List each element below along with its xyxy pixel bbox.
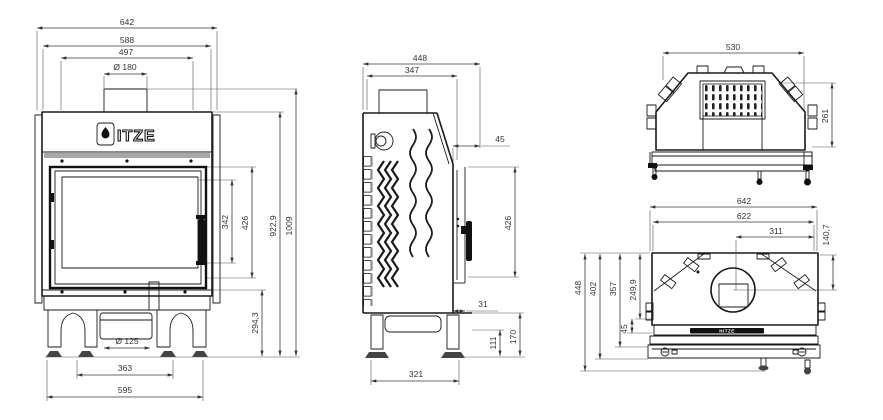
front-dim-base-width: 595: [118, 385, 132, 395]
left-slope-tabs: [658, 77, 681, 102]
top-dim-overall-depth: 448: [573, 281, 583, 295]
front-dim-door-height: 426: [240, 216, 250, 230]
vent-panel-slots: [703, 84, 762, 116]
hinge: [50, 193, 54, 202]
fireplace-drawing: 642 588 497 Ø 180 342 426 922,9 1009: [0, 0, 883, 420]
side-view: 448 347 45 426 31 111 170 321: [363, 53, 525, 385]
front-view-body: ITZE: [35, 89, 220, 357]
door-handle-side: [466, 221, 472, 261]
foot: [78, 351, 94, 357]
logo-strip-text: HITZE: [719, 329, 735, 334]
right-trim: [213, 115, 220, 303]
right-slope-tabs: [779, 77, 802, 102]
brand-logo-text: ITZE: [117, 128, 156, 145]
foot: [160, 351, 176, 357]
rear-top-body: [647, 66, 817, 186]
front-view-dimensions: 642 588 497 Ø 180 342 426 922,9 1009: [37, 17, 300, 401]
foot-bolt: [804, 179, 811, 186]
flame-icon: [102, 127, 110, 138]
right-legs: [157, 310, 206, 347]
top-band-strip: [44, 153, 210, 158]
front-frame-band: [652, 152, 812, 165]
side-dim-door-height: 426: [503, 216, 513, 230]
top-dim-body-front-depth: 357: [608, 282, 618, 296]
right-hook: [804, 152, 812, 166]
top-dim-frame-depth: 402: [588, 282, 598, 296]
foot-bolt: [757, 179, 763, 185]
front-dim-glass-height: 342: [220, 215, 230, 229]
front-dim-body-height: 922,9: [268, 215, 278, 237]
side-dim-bottom-lip: 31: [478, 299, 488, 309]
foot: [759, 366, 769, 371]
front-dim-overall-width: 642: [120, 17, 134, 27]
rear-fin-strip: [364, 156, 373, 306]
side-dim-base-height: 170: [508, 330, 518, 344]
side-dim-leg-height: 111: [488, 336, 498, 349]
left-trim: [35, 115, 42, 303]
side-dim-overall-depth: 448: [413, 53, 427, 63]
flue-collar-side: [379, 90, 427, 113]
front-dim-leg-spacing: 363: [118, 363, 132, 373]
front-leg-side: [447, 315, 459, 349]
base-band: [44, 296, 210, 310]
foot: [804, 368, 811, 375]
glass-pane: [62, 177, 198, 268]
top-dim-front-gap: 45: [619, 324, 629, 334]
front-view: 642 588 497 Ø 180 342 426 922,9 1009: [35, 17, 300, 401]
door-handle: [198, 219, 205, 262]
top-view: 642 622 311 140,7 448 402 357 249,9: [573, 196, 837, 375]
front-dim-upper-width: 588: [120, 35, 134, 45]
heat-fin-zigzag: [378, 161, 384, 287]
technical-drawing-sheet: 642 588 497 Ø 180 342 426 922,9 1009: [0, 0, 883, 420]
flue-collar: [104, 89, 147, 112]
foot: [365, 352, 389, 358]
front-dim-intake-diameter: Ø 125: [115, 336, 138, 346]
left-legs: [48, 310, 97, 347]
foot: [192, 351, 208, 357]
top-dim-flue-offset: 311: [769, 226, 783, 236]
front-dim-flue-diameter: Ø 180: [113, 62, 136, 72]
rear-leg-side: [371, 315, 383, 349]
top-view-body: HITZE: [646, 253, 825, 375]
lower-frame-band: [648, 345, 820, 358]
hinge: [50, 240, 54, 249]
top-dim-overall-width: 642: [737, 196, 751, 206]
top-dim-body-width: 622: [737, 211, 751, 221]
door-frame: [50, 167, 206, 288]
front-dim-inner-width: 497: [119, 47, 133, 57]
reartop-dim-depth: 261: [820, 109, 830, 123]
side-view-body: [363, 90, 472, 358]
baffle-wave: [410, 129, 416, 257]
front-dim-base-height: 294,3: [250, 312, 260, 334]
side-dim-body-depth: 347: [405, 65, 419, 75]
top-dim-flue-center-depth: 140,7: [821, 224, 831, 246]
foot: [46, 351, 62, 357]
side-dim-base-depth: 321: [409, 369, 423, 379]
foot: [441, 352, 465, 358]
rear-top-view: 530 261: [647, 42, 836, 186]
side-dim-front-frame-depth: 45: [495, 134, 505, 144]
reartop-dim-top-width: 530: [726, 42, 740, 52]
brand-logo: ITZE: [97, 123, 156, 145]
front-dim-overall-height: 1009: [284, 216, 294, 235]
top-dim-flue-depth: 249,9: [628, 279, 638, 301]
foot-bolt: [652, 174, 658, 180]
air-intake-port: [375, 132, 393, 150]
